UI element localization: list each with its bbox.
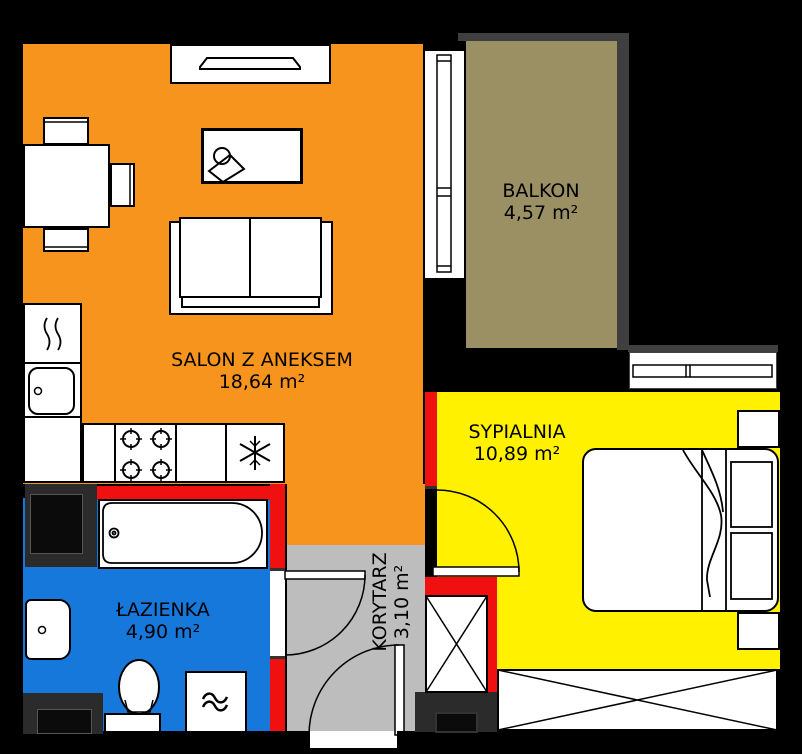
room-name: SALON Z ANEKSEM	[171, 349, 353, 371]
room-area: 3,10 m²	[391, 565, 413, 639]
room-name: ŁAZIENKA	[116, 599, 210, 621]
wardrobe	[497, 669, 778, 731]
wall-sypialnia-left	[425, 392, 437, 488]
room-label-lazienka: ŁAZIENKA 4,90 m²	[83, 599, 243, 643]
bedroom-window	[629, 352, 777, 389]
wall-bath-right-upper	[270, 484, 285, 571]
room-area: 4,90 m²	[126, 621, 200, 643]
room-label-korytarz: KORYTARZ 3,10 m²	[369, 522, 413, 682]
sofa-front-band	[181, 296, 320, 308]
shaft-kitchen-inner	[30, 494, 83, 554]
room-name: BALKON	[502, 180, 579, 202]
dining-table	[23, 144, 110, 228]
floor-plan: SALON Z ANEKSEM 18,64 m² BALKON 4,57 m² …	[0, 0, 802, 754]
chair-bottom	[43, 228, 89, 252]
room-name: SYPIALNIA	[468, 421, 565, 443]
shaft-korytarz-inner	[435, 712, 478, 733]
bed	[582, 448, 779, 612]
sofa-seat	[179, 217, 322, 298]
balcony-rail-top	[458, 33, 629, 41]
shaft-bath-inner	[37, 709, 92, 734]
room-label-balkon: BALKON 4,57 m²	[465, 180, 617, 224]
wall-sypialnia-band	[425, 577, 497, 595]
nightstand-top	[737, 410, 780, 448]
washing-machine	[185, 671, 247, 733]
room-name: KORYTARZ	[369, 552, 391, 651]
bathtub	[98, 499, 268, 569]
closet	[425, 595, 488, 693]
room-label-salon: SALON Z ANEKSEM 18,64 m²	[142, 349, 382, 393]
balcony-rail-right	[617, 33, 629, 350]
desk	[201, 128, 303, 184]
bedroom-window-bar	[628, 345, 778, 352]
room-area: 18,64 m²	[219, 371, 306, 393]
wall-bath-top	[97, 486, 285, 500]
room-area: 10,89 m²	[474, 443, 561, 465]
kitchen-tall-cabinet	[23, 303, 82, 483]
tv-console	[170, 44, 331, 84]
nightstand-bottom	[737, 612, 780, 650]
wall-closet-right	[488, 595, 497, 693]
room-label-sypialnia: SYPIALNIA 10,89 m²	[437, 421, 597, 465]
chair-top	[43, 117, 89, 145]
chair-right	[110, 163, 135, 207]
room-area: 4,57 m²	[504, 202, 578, 224]
balcony-door	[425, 51, 464, 278]
bath-door-opening	[270, 571, 285, 658]
wall-bath-right-lower	[270, 658, 285, 731]
fridge-freezer	[225, 423, 285, 483]
entrance-threshold	[310, 731, 397, 748]
washbasin	[25, 599, 71, 660]
toilet-cistern	[104, 713, 161, 733]
